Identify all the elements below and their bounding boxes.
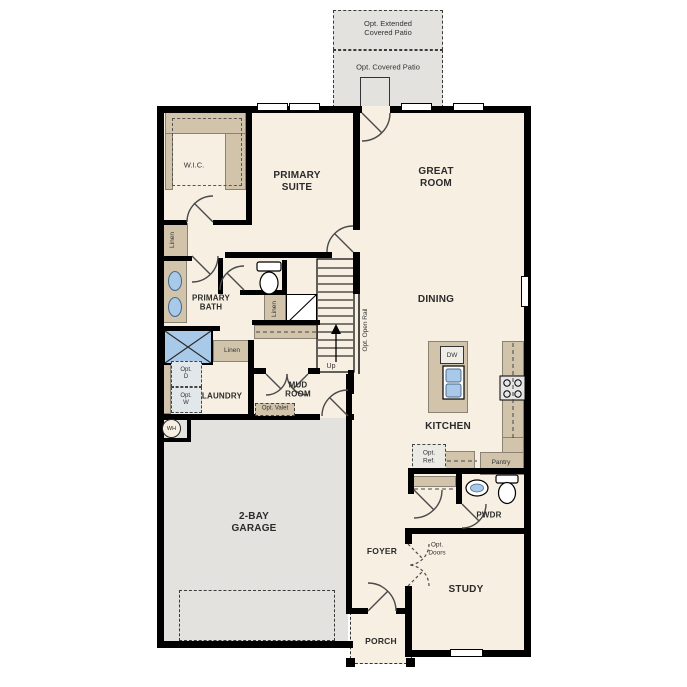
patio-landing — [360, 77, 390, 108]
wall-segment — [405, 528, 531, 534]
wall-segment — [282, 260, 287, 294]
great-room-label: GREAT ROOM — [418, 166, 453, 190]
primary-suite-label: PRIMARY SUITE — [273, 170, 320, 194]
linen-bath-label: Linen — [224, 347, 240, 355]
wall-segment — [240, 290, 287, 295]
fridge-counter — [445, 451, 475, 469]
mud-bench — [254, 325, 318, 339]
wall-segment — [408, 474, 414, 494]
opt-ref-label: Opt. Ref. — [423, 449, 435, 464]
wall-segment — [157, 256, 192, 261]
window — [521, 276, 529, 307]
primary-bath-label: PRIMARY BATH — [192, 294, 230, 313]
wall-segment — [157, 106, 164, 648]
pwdr-label: PWDR — [476, 510, 501, 519]
pantry-label: Pantry — [492, 459, 511, 467]
shower — [163, 329, 213, 365]
wall-segment — [157, 438, 191, 442]
wall-segment — [524, 106, 531, 657]
wall-segment — [252, 320, 320, 325]
mud-room-label: MUD ROOM — [285, 381, 311, 400]
floor-plan: Opt. Extended Covered Patio Opt. Covered… — [0, 0, 687, 687]
patio-door-opening — [362, 106, 390, 113]
wall-segment — [408, 468, 530, 474]
laundry-label: LAUNDRY — [202, 391, 242, 400]
laundry-counter — [163, 361, 171, 414]
linen-hall-label: Linen — [169, 232, 177, 248]
wall-segment — [246, 106, 252, 225]
dishwasher-label: DW — [447, 352, 458, 359]
kitchen-counter-right — [502, 341, 524, 443]
porch-post-right — [406, 658, 415, 667]
dining-label: DINING — [418, 294, 454, 306]
wic-shelf-edge — [172, 118, 242, 186]
wall-segment — [213, 220, 252, 225]
garage-label: 2-BAY GARAGE — [231, 511, 276, 535]
water-heater-label: WH — [167, 426, 176, 432]
window — [289, 103, 320, 111]
wall-segment — [157, 641, 353, 648]
water-heater: WH — [162, 419, 181, 438]
opt-open-rail-label: Opt. Open Rail — [362, 309, 370, 352]
window — [257, 103, 288, 111]
wall-segment — [218, 258, 223, 294]
wall-segment — [157, 326, 220, 331]
wall-segment — [353, 106, 360, 230]
dishwasher-box: DW — [440, 346, 464, 364]
porch-label: PORCH — [365, 636, 397, 646]
opt-doors-label: Opt. Doors — [428, 541, 445, 556]
linen-stairs-label: Linen — [271, 301, 279, 317]
wall-segment — [346, 374, 352, 608]
window — [453, 103, 484, 111]
kitchen-label: KITCHEN — [425, 421, 471, 433]
wall-segment — [308, 368, 320, 374]
wall-segment — [353, 252, 360, 294]
opt-valet-label: Opt. Valet — [262, 405, 288, 412]
foyer-closet-shelf — [412, 476, 456, 487]
opt-w-label: Opt. W — [180, 393, 191, 407]
wall-segment — [225, 252, 332, 258]
wall-segment — [348, 414, 354, 420]
wall-segment — [405, 586, 412, 656]
study-label: STUDY — [449, 584, 484, 596]
wall-segment — [157, 220, 187, 225]
wall-segment — [157, 414, 320, 420]
window — [401, 103, 432, 111]
up-label: Up — [327, 363, 336, 371]
extended-patio-label: Opt. Extended Covered Patio — [364, 20, 412, 38]
opt-d-label: Opt. D — [180, 367, 191, 381]
window — [450, 649, 483, 657]
wall-segment — [252, 368, 266, 374]
wall-segment — [346, 608, 368, 614]
wall-segment — [456, 474, 462, 504]
foyer-label: FOYER — [367, 546, 397, 556]
bath-vanity — [163, 259, 187, 323]
garage-door-bay — [179, 590, 335, 641]
wall-segment — [248, 340, 254, 420]
porch-post-left — [346, 658, 355, 667]
wic-label: W.I.C. — [184, 162, 204, 171]
covered-patio-label: Opt. Covered Patio — [356, 64, 420, 73]
wall-segment — [187, 414, 191, 442]
